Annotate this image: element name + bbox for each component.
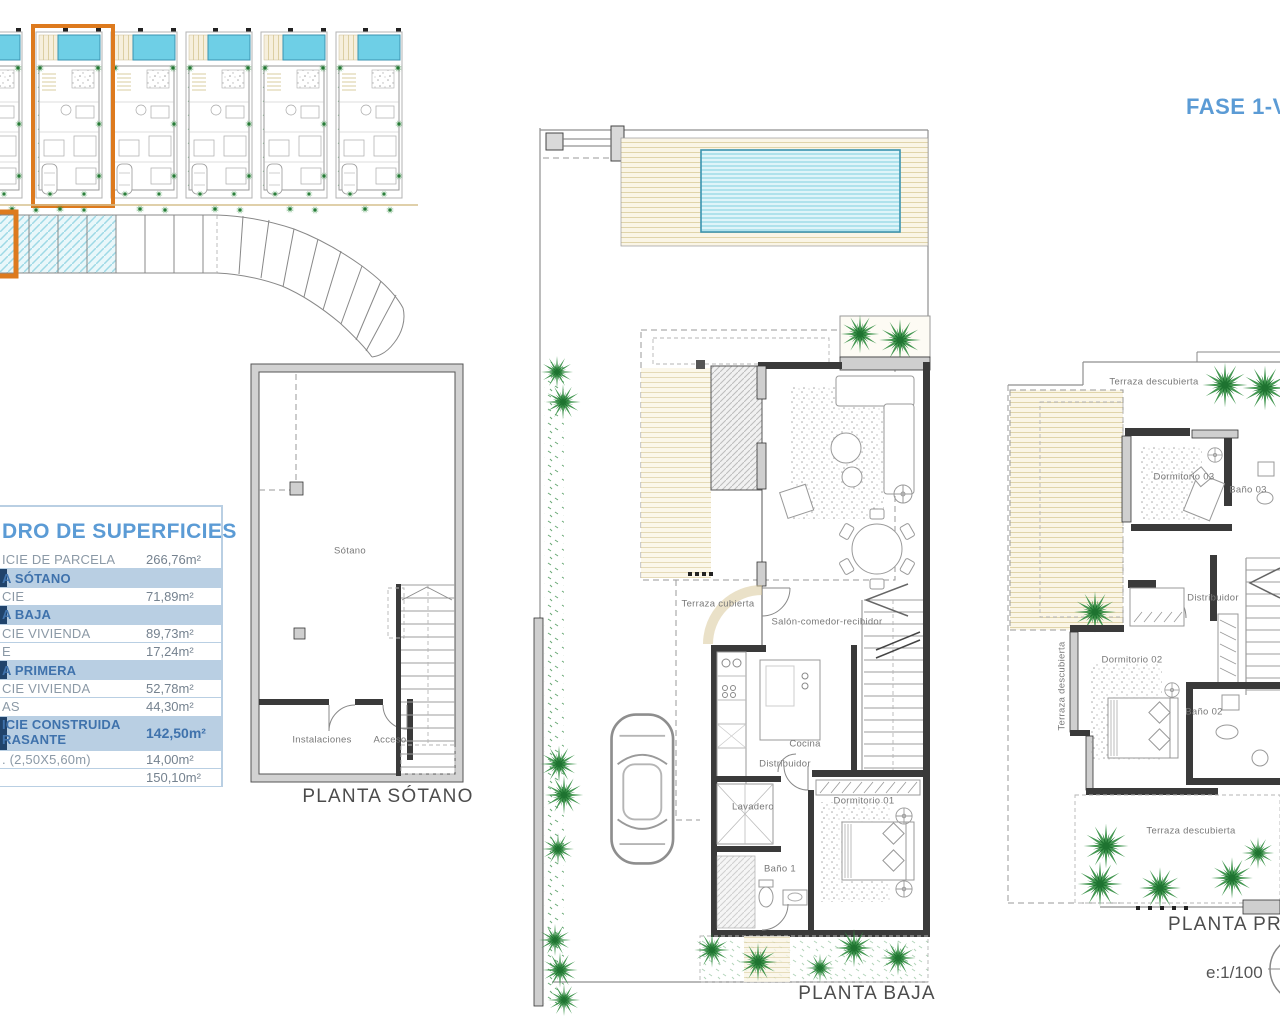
room-label-terraza-cubierta: Terraza cubierta bbox=[682, 599, 755, 610]
site-plan bbox=[0, 26, 418, 214]
palm-tree-icon bbox=[1139, 867, 1181, 909]
table-row: E17,24m² bbox=[0, 643, 221, 661]
caption-planta-primera: PLANTA PRIMERA bbox=[1168, 914, 1280, 936]
ceiling-fan-icon bbox=[896, 808, 912, 824]
table-row: A BAJA bbox=[0, 606, 221, 624]
table-row: A PRIMERA bbox=[0, 661, 221, 679]
bed bbox=[842, 822, 914, 880]
dining-table bbox=[852, 524, 902, 574]
room-label-cocina: Cocina bbox=[789, 739, 820, 750]
room-label-terraza-bottom: Terraza descubierta bbox=[1146, 826, 1235, 837]
first-floor-stairs bbox=[1246, 558, 1280, 695]
ceiling-fan-icon bbox=[1208, 448, 1222, 462]
parking-row bbox=[0, 212, 404, 357]
room-label-acceso: Acceso bbox=[374, 735, 407, 746]
palm-tree-icon bbox=[539, 924, 571, 956]
palm-tree-icon bbox=[1084, 824, 1129, 869]
table-row: A SÓTANO bbox=[0, 569, 221, 587]
caption-planta-sotano: PLANTA SÓTANO bbox=[302, 786, 473, 808]
table-row: CIE71,89m² bbox=[0, 588, 221, 606]
palm-tree-icon bbox=[1203, 363, 1248, 408]
basement-plan bbox=[251, 364, 463, 782]
surface-table-rows: ICIE DE PARCELA266,76m²A SÓTANOCIE71,89m… bbox=[0, 551, 221, 787]
room-label-sotano: Sótano bbox=[334, 546, 366, 557]
closet bbox=[1130, 588, 1184, 626]
room-label-lavadero: Lavadero bbox=[732, 802, 774, 813]
shower bbox=[717, 856, 755, 928]
bathtub bbox=[1216, 725, 1238, 739]
door-arc bbox=[784, 766, 808, 790]
table-row: 150,10m² bbox=[0, 769, 221, 787]
sofa bbox=[884, 404, 914, 494]
sofa bbox=[836, 376, 914, 406]
surface-table-title: DRO DE SUPERFICIES bbox=[0, 507, 221, 551]
first-floor-plan bbox=[1008, 352, 1280, 914]
washbasin bbox=[1222, 695, 1239, 710]
floor-plan-sheet: FASE 1-VILL Sótano Instalaciones Acceso … bbox=[0, 0, 1280, 1024]
toilet bbox=[759, 887, 773, 907]
ceiling-fan-icon bbox=[896, 881, 912, 897]
coffee-table bbox=[831, 433, 861, 463]
table-row: . (2,50X5,60m)14,00m² bbox=[0, 751, 221, 769]
room-label-bano02: Baño 02 bbox=[1185, 707, 1223, 718]
room-label-dormitorio03: Dormitorio 03 bbox=[1154, 472, 1215, 483]
table-row: CIE VIVIENDA52,78m² bbox=[0, 680, 221, 698]
fase-title: FASE 1-VILL bbox=[1186, 94, 1280, 120]
room-label-instalaciones: Instalaciones bbox=[292, 735, 351, 746]
door-arc bbox=[762, 904, 788, 930]
toilet bbox=[1252, 750, 1268, 766]
room-label-dormitorio01: Dormitorio 01 bbox=[834, 796, 895, 807]
scale-label: e:1/100 bbox=[1206, 963, 1263, 983]
room-label-terraza-top: Terraza descubierta bbox=[1109, 377, 1198, 388]
washbasin bbox=[783, 890, 807, 905]
room-label-bano03: Baño 03 bbox=[1229, 485, 1267, 496]
washbasin bbox=[1258, 462, 1274, 476]
ground-floor-stairs bbox=[862, 584, 923, 772]
ceiling-fan-icon bbox=[894, 485, 912, 503]
palm-tree-icon bbox=[1078, 862, 1123, 907]
door-arc bbox=[762, 588, 790, 616]
car-icon bbox=[612, 715, 674, 864]
bed bbox=[1108, 698, 1178, 758]
room-label-bano1: Baño 1 bbox=[764, 864, 796, 875]
room-label-distribuidor-p1: Distribuidor bbox=[1187, 593, 1239, 604]
room-label-dormitorio02: Dormitorio 02 bbox=[1102, 655, 1163, 666]
surface-table: DRO DE SUPERFICIES ICIE DE PARCELA266,76… bbox=[0, 505, 223, 787]
room-label-salon: Salón-comedor-recibidor bbox=[772, 617, 883, 628]
palm-tree-icon bbox=[1243, 366, 1280, 411]
palm-tree-icon bbox=[1211, 857, 1253, 899]
caption-planta-baja: PLANTA BAJA bbox=[798, 983, 935, 1005]
ceiling-fan-icon bbox=[1165, 683, 1179, 697]
room-label-terraza-left: Terraza descubierta bbox=[1057, 641, 1068, 730]
ground-floor-plan bbox=[534, 126, 930, 1016]
table-row: ICIE DE PARCELA266,76m² bbox=[0, 551, 221, 569]
palm-tree-icon bbox=[1242, 837, 1274, 869]
scale-circle bbox=[1268, 936, 1280, 1002]
kitchen-island bbox=[760, 660, 820, 740]
pool bbox=[701, 150, 900, 232]
table-row: ICIE CONSTRUIDARASANTE142,50m² bbox=[0, 717, 221, 751]
table-row: AS44,30m² bbox=[0, 698, 221, 716]
table-row: CIE VIVIENDA89,73m² bbox=[0, 625, 221, 643]
closet bbox=[1218, 614, 1238, 688]
room-label-distribuidor-pb: Distribuidor bbox=[759, 759, 811, 770]
